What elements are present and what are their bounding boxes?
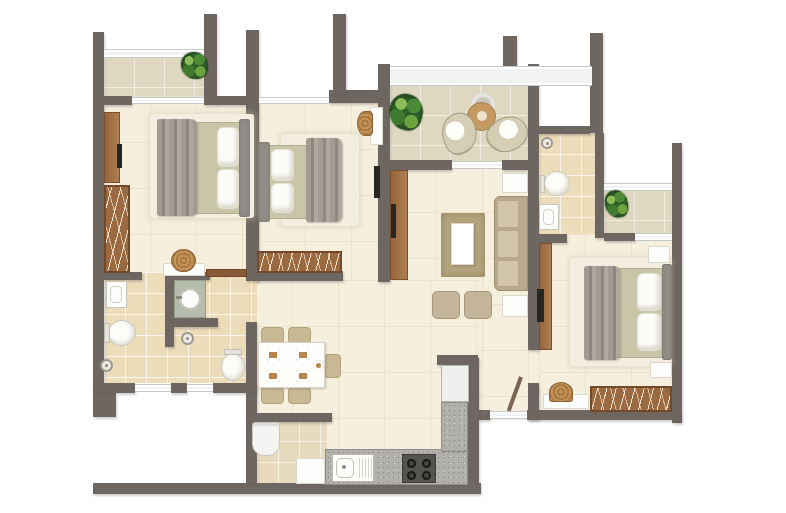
- window-bath1-shaft: [135, 384, 171, 392]
- wall-kitchen-right: [468, 358, 479, 485]
- dining-chair: [261, 387, 284, 404]
- master-pillow: [638, 314, 660, 350]
- sofa: [494, 196, 528, 291]
- master-nightstand: [650, 362, 672, 378]
- bedroom1-wardrobe: [104, 185, 130, 273]
- window-master-bedroom: [635, 233, 672, 241]
- wall-basin-niche-bottom: [174, 318, 218, 327]
- bedroom2-wall-tv: [374, 166, 380, 198]
- bath1-shower-head: [100, 359, 113, 372]
- master-wardrobe: [590, 386, 672, 412]
- ensuite-toilet-tank: [540, 175, 545, 193]
- dining-chair: [324, 354, 341, 378]
- bath2-toilet: [221, 353, 245, 381]
- kitchen-sink: [332, 454, 374, 482]
- dining-table: [258, 342, 325, 388]
- bedroom2-bed-blanket: [306, 138, 342, 222]
- bath2-shower-head: [181, 332, 194, 345]
- master-tv-icon: [537, 289, 544, 322]
- wall-stub-top-center: [333, 14, 346, 94]
- wall-ensuite-right: [595, 133, 604, 238]
- bath2-door: [206, 269, 247, 277]
- window-bedroom2: [259, 97, 329, 104]
- bedroom1-pillow: [218, 128, 238, 166]
- ensuite-basin: [539, 204, 559, 230]
- wall-dining-left: [246, 322, 257, 483]
- bath1-basin: [106, 281, 127, 308]
- wall-right-outer: [672, 143, 682, 423]
- master-pillow: [638, 274, 660, 310]
- bedroom2-pillow: [272, 184, 293, 212]
- washing-machine: [441, 365, 469, 402]
- wall-bath-bottom-b: [171, 383, 187, 393]
- window-bath2-shaft: [187, 384, 213, 392]
- bath1-toilet-tank: [104, 323, 110, 343]
- sofa-end-table: [502, 173, 528, 193]
- kitchen-counter-right: [441, 402, 468, 452]
- window-main-balcony-glazing: [390, 66, 592, 86]
- bedroom2-wardrobe: [257, 251, 342, 273]
- stove-hob: [402, 454, 436, 483]
- wall-bath-bottom-c: [213, 383, 257, 393]
- sofa-end-table: [502, 295, 528, 317]
- master-nightstand: [648, 246, 670, 263]
- living-tv-icon: [391, 204, 396, 238]
- bath2-toilet-tank: [224, 349, 242, 355]
- wall-ensuite-bottom: [539, 234, 567, 243]
- ensuite-toilet: [544, 171, 570, 196]
- wall-bath-bottom-a: [93, 383, 135, 393]
- balcony-table-tray: [477, 111, 487, 121]
- bath2-tap: [176, 296, 182, 299]
- master-bed-headboard: [662, 264, 672, 360]
- entrance-threshold: [490, 411, 527, 419]
- ensuite-shower-head: [541, 137, 553, 149]
- coffee-table: [451, 223, 474, 265]
- dining-chair: [288, 387, 311, 404]
- wall-dining-kitchen: [246, 413, 332, 422]
- bedroom1-bed-headboard: [239, 119, 250, 217]
- wall-balcony-bottom-a: [390, 160, 452, 170]
- wall-bedroom1-bath: [104, 272, 142, 280]
- bath1-toilet: [108, 320, 136, 346]
- bedroom2-stool: [357, 111, 373, 136]
- wall-bedroom1-top-b: [216, 96, 246, 105]
- window-balcony-slider: [452, 161, 502, 169]
- master-stool: [549, 382, 573, 402]
- master-door-threshold-floor: [528, 350, 539, 383]
- bedroom1-pillow: [218, 170, 238, 208]
- bath2-basin: [179, 288, 201, 310]
- pouf: [432, 291, 460, 319]
- refrigerator: [252, 422, 280, 456]
- wall-stub-balcony: [503, 36, 517, 67]
- master-bed-blanket: [584, 266, 620, 360]
- bedroom2-pillow: [272, 150, 293, 180]
- plant-icon: [181, 52, 208, 79]
- wall-balcony-bottom-b: [502, 160, 528, 170]
- bedroom2-bed-headboard: [258, 142, 270, 222]
- window-bedroom1-balcony: [132, 97, 204, 104]
- wall-left-outer: [93, 32, 104, 393]
- wall-bath1-bath2: [165, 272, 174, 347]
- bedroom1-stool: [171, 249, 196, 272]
- wall-bedroom1-top-a: [104, 96, 132, 105]
- kitchen-cabinet: [296, 458, 325, 484]
- bedroom1-tv-icon: [117, 144, 122, 168]
- pouf: [464, 291, 492, 319]
- floor-plan: [0, 0, 786, 513]
- wall-ensuite-top: [539, 126, 590, 134]
- wall-master-balcony-bottom: [604, 233, 635, 241]
- bedroom1-bed-blanket: [157, 119, 197, 216]
- wall-left-pier: [93, 393, 116, 417]
